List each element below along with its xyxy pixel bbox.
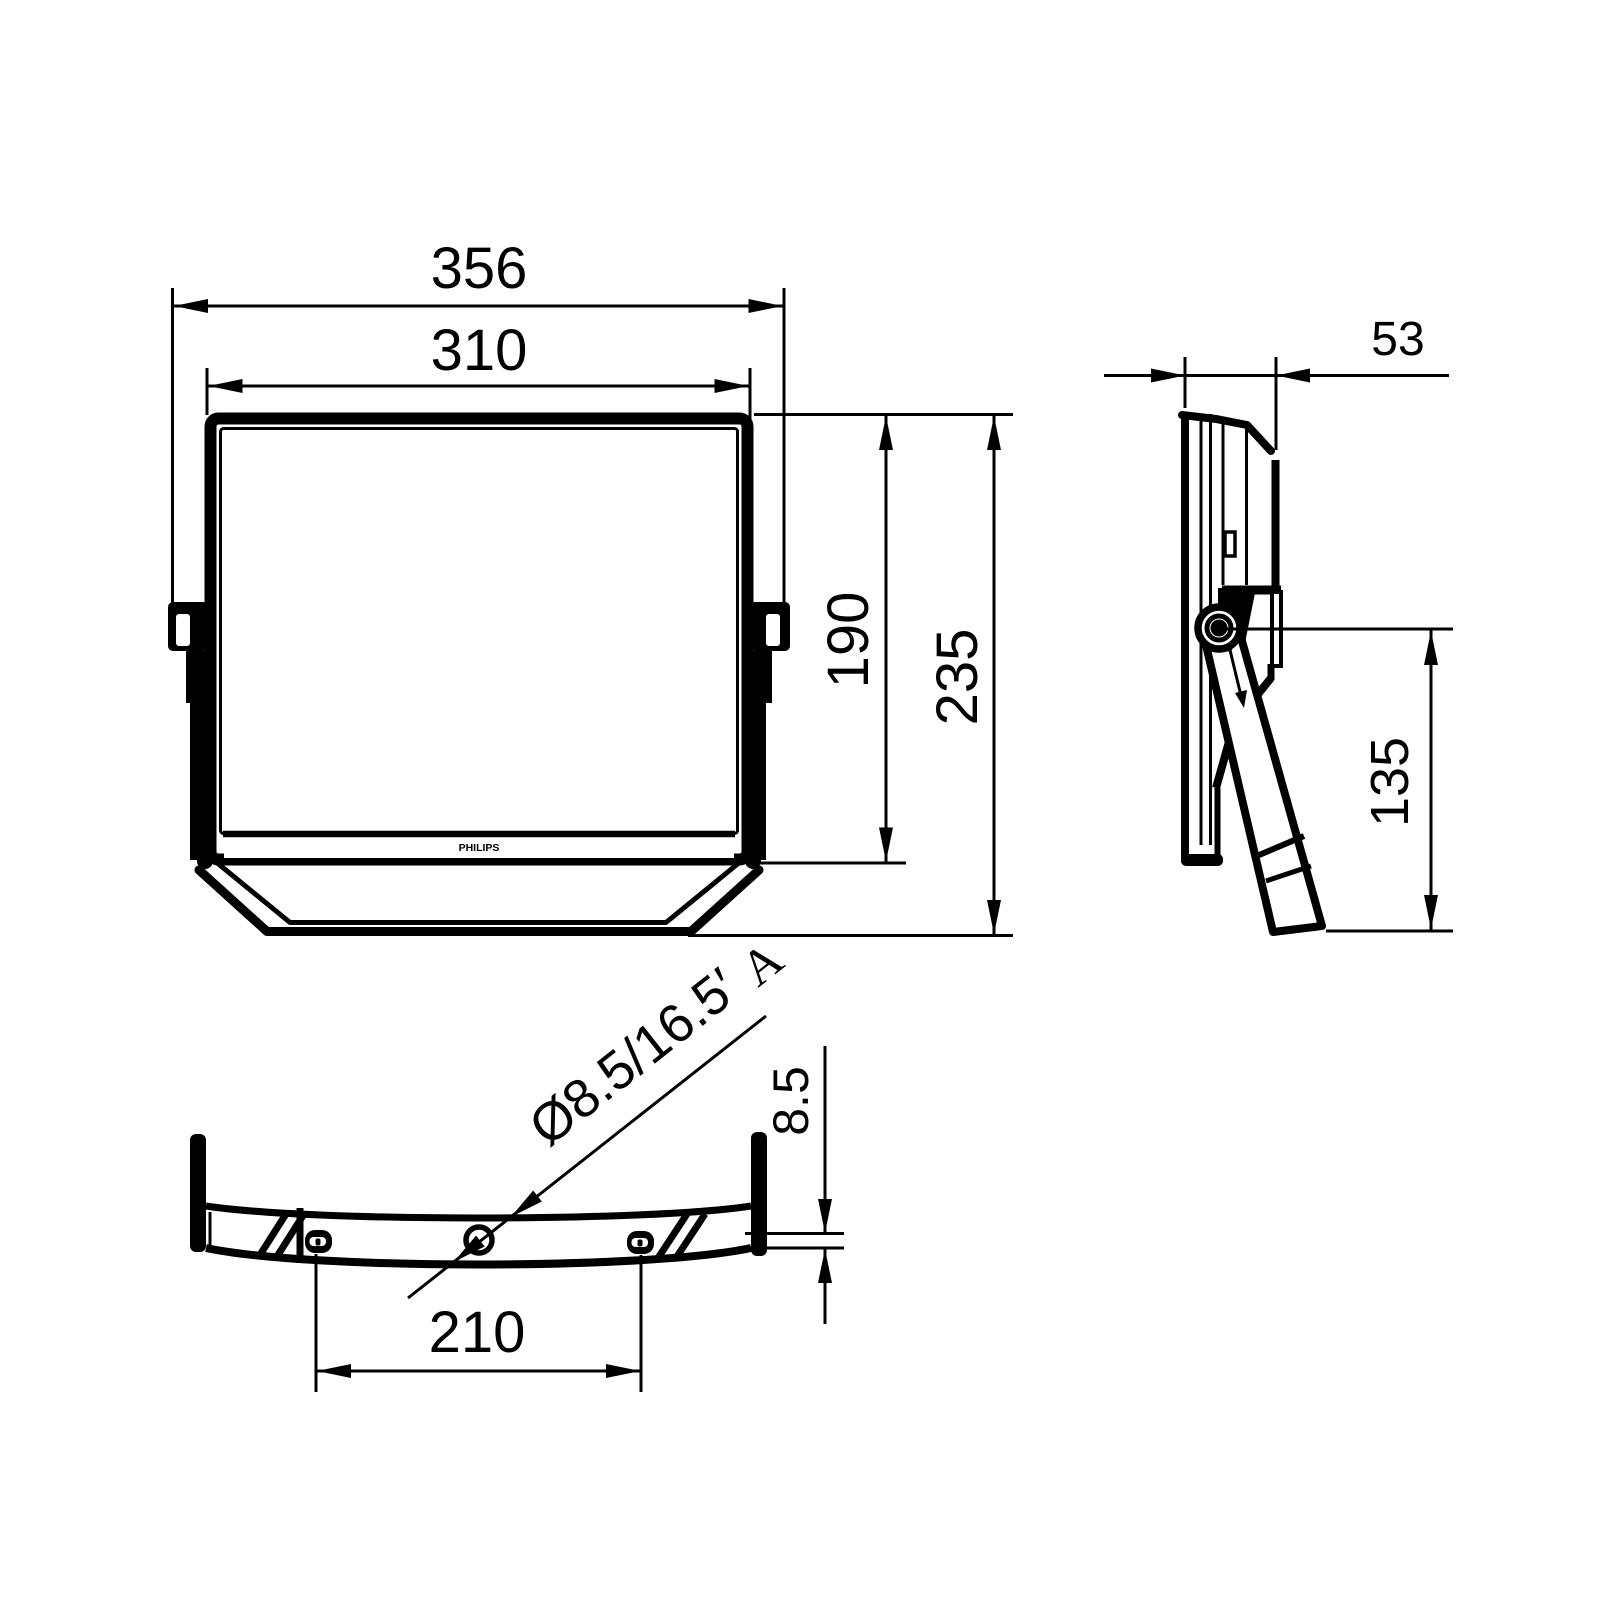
- svg-text:53: 53: [1371, 313, 1424, 366]
- svg-text:356: 356: [431, 236, 528, 301]
- svg-text:235: 235: [925, 629, 990, 726]
- svg-text:210: 210: [429, 1300, 526, 1365]
- svg-text:310: 310: [431, 318, 528, 383]
- svg-text:PHILIPS: PHILIPS: [459, 842, 500, 854]
- svg-text:8.5: 8.5: [763, 1066, 819, 1136]
- svg-text:190: 190: [816, 592, 881, 689]
- svg-text:135: 135: [1360, 737, 1420, 827]
